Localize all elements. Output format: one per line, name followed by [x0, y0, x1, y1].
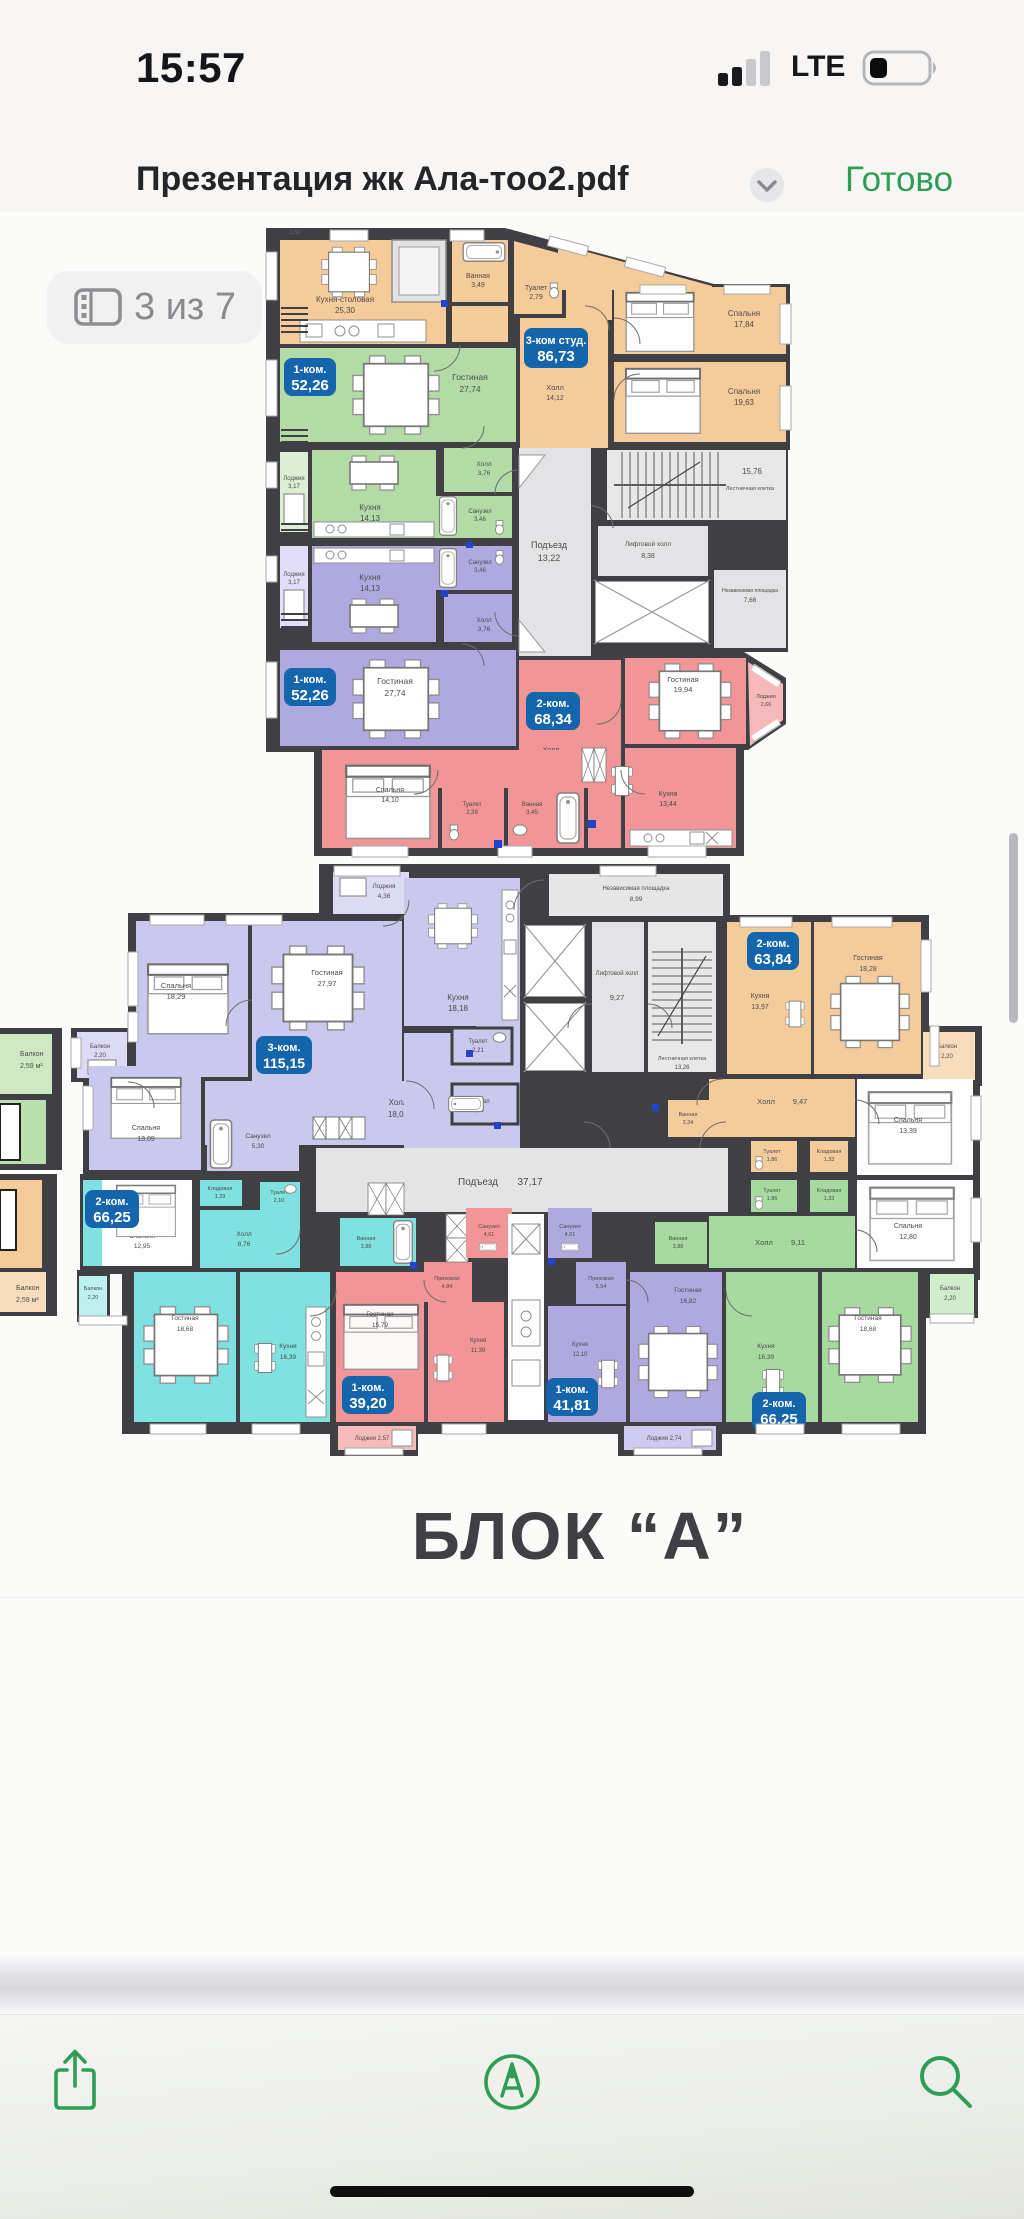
svg-text:13,22: 13,22: [538, 553, 561, 563]
svg-text:68,34: 68,34: [534, 711, 572, 728]
svg-text:12,95: 12,95: [134, 1243, 151, 1250]
svg-text:16,39: 16,39: [280, 1354, 297, 1361]
svg-text:Спальня: Спальня: [728, 309, 760, 318]
svg-text:Ванная: Ванная: [466, 273, 490, 280]
svg-text:Холл: Холл: [546, 383, 564, 392]
svg-text:Прихожая: Прихожая: [588, 1276, 614, 1282]
svg-text:18,29: 18,29: [167, 992, 186, 1001]
svg-text:15,76: 15,76: [742, 467, 763, 476]
svg-text:Лестничная клетка: Лестничная клетка: [726, 486, 775, 492]
svg-text:Кухня: Кухня: [279, 1343, 297, 1350]
svg-text:Балкон: Балкон: [940, 1286, 960, 1292]
svg-text:3,49: 3,49: [471, 282, 485, 289]
svg-text:Санузел: Санузел: [478, 1224, 499, 1230]
svg-text:1,86: 1,86: [767, 1157, 778, 1163]
svg-text:Холл: Холл: [757, 1097, 775, 1106]
svg-text:3,45: 3,45: [526, 810, 538, 816]
svg-text:18,28: 18,28: [859, 966, 877, 973]
svg-text:4,61: 4,61: [565, 1232, 576, 1238]
svg-text:Кухня: Кухня: [359, 573, 380, 582]
svg-text:2-ком.: 2-ком.: [96, 1196, 129, 1208]
svg-text:Гостиная: Гостиная: [853, 955, 883, 962]
svg-text:19,63: 19,63: [734, 398, 755, 407]
svg-text:3,76: 3,76: [478, 470, 491, 477]
svg-text:Балкон: Балкон: [84, 1286, 102, 1292]
svg-text:Ванная: Ванная: [679, 1112, 698, 1118]
svg-text:Лестничная клетка: Лестничная клетка: [658, 1056, 707, 1062]
svg-text:Балкон: Балкон: [20, 1051, 44, 1058]
svg-text:Холл: Холл: [236, 1231, 252, 1238]
svg-text:2,20: 2,20: [88, 1295, 99, 1301]
svg-text:18,68: 18,68: [860, 1326, 877, 1333]
svg-text:13,26: 13,26: [674, 1065, 690, 1071]
svg-text:Кухня-столовая: Кухня-столовая: [316, 295, 374, 304]
svg-text:Гостиная: Гостиная: [377, 676, 413, 686]
svg-text:2,20: 2,20: [94, 1053, 106, 1059]
svg-text:7,66: 7,66: [744, 597, 757, 604]
svg-text:5,30: 5,30: [252, 1143, 265, 1150]
svg-text:Подъезд: Подъезд: [531, 540, 568, 550]
svg-text:Кухня: Кухня: [470, 1338, 486, 1344]
svg-text:9,47: 9,47: [793, 1097, 808, 1106]
svg-text:14,13: 14,13: [360, 584, 381, 593]
svg-text:13,97: 13,97: [751, 1004, 769, 1011]
svg-text:Туалет: Туалет: [763, 1188, 781, 1194]
svg-text:52,26: 52,26: [291, 377, 329, 394]
svg-text:Лоджия: Лоджия: [283, 476, 304, 482]
svg-text:86,73: 86,73: [537, 348, 575, 365]
svg-text:Спальня: Спальня: [376, 787, 404, 794]
svg-text:3,88: 3,88: [361, 1244, 372, 1250]
svg-text:Гостиная: Гостиная: [171, 1315, 199, 1322]
svg-text:Ванная: Ванная: [669, 1236, 688, 1242]
svg-text:3-ком.: 3-ком.: [268, 1042, 301, 1054]
svg-text:Лоджия: Лоджия: [283, 572, 304, 578]
svg-text:2,79: 2,79: [529, 294, 543, 301]
svg-text:Кухня: Кухня: [757, 1343, 775, 1350]
svg-text:12,10: 12,10: [572, 1352, 588, 1358]
svg-text:18,18: 18,18: [448, 1004, 469, 1013]
svg-text:3,46: 3,46: [474, 517, 486, 523]
svg-text:4,36: 4,36: [378, 893, 391, 900]
svg-text:Холл: Холл: [755, 1238, 773, 1247]
svg-text:3,34: 3,34: [683, 1120, 694, 1126]
svg-text:1,33: 1,33: [824, 1196, 835, 1202]
svg-text:27,74: 27,74: [384, 688, 406, 698]
svg-text:2,39: 2,39: [466, 810, 478, 816]
svg-text:16,39: 16,39: [758, 1354, 775, 1361]
svg-text:13,09: 13,09: [137, 1136, 155, 1143]
svg-text:Кухня: Кухня: [359, 503, 380, 512]
svg-text:Ванная: Ванная: [357, 1236, 376, 1242]
svg-text:Балкон: Балкон: [937, 1044, 957, 1050]
svg-text:2-ком.: 2-ком.: [763, 1398, 796, 1410]
svg-text:Независимая площадка: Независимая площадка: [603, 886, 671, 892]
svg-text:13,39: 13,39: [899, 1128, 917, 1135]
svg-text:Спальня: Спальня: [894, 1117, 922, 1124]
svg-text:Лоджия 2,57: Лоджия 2,57: [355, 1436, 390, 1442]
svg-text:Лоджия: Лоджия: [756, 694, 776, 700]
svg-text:Прихожая: Прихожая: [434, 1276, 460, 1282]
svg-text:Кухня: Кухня: [447, 993, 468, 1002]
svg-text:Холл: Холл: [476, 461, 492, 468]
svg-text:8,38: 8,38: [641, 553, 655, 560]
svg-text:Гостиная: Гостиная: [667, 675, 698, 684]
svg-text:115,15: 115,15: [263, 1055, 305, 1071]
svg-text:Независимая площадка: Независимая площадка: [722, 588, 778, 594]
svg-text:3,17: 3,17: [288, 580, 300, 586]
svg-text:13,44: 13,44: [659, 801, 677, 808]
svg-text:1-ком.: 1-ком.: [352, 1382, 385, 1394]
svg-text:Гостиная: Гостиная: [854, 1315, 882, 1322]
svg-text:4,84: 4,84: [442, 1284, 453, 1290]
svg-text:3,46: 3,46: [474, 568, 486, 574]
svg-text:Спальня: Спальня: [132, 1125, 160, 1132]
svg-text:18,68: 18,68: [177, 1326, 194, 1333]
svg-text:8,99: 8,99: [630, 896, 643, 903]
svg-text:Лоджия 2,74: Лоджия 2,74: [647, 1436, 682, 1442]
svg-text:3,88: 3,88: [673, 1244, 684, 1250]
svg-text:1,33: 1,33: [824, 1157, 835, 1163]
svg-text:Лоджия: Лоджия: [372, 883, 396, 890]
svg-text:Кухня: Кухня: [751, 993, 770, 1000]
svg-text:3,17: 3,17: [288, 484, 300, 490]
svg-text:37,17: 37,17: [517, 1177, 542, 1188]
svg-text:Кладовая: Кладовая: [817, 1188, 842, 1194]
svg-text:2-ком.: 2-ком.: [537, 698, 570, 710]
svg-text:27,74: 27,74: [459, 384, 481, 394]
svg-text:2,59 м²: 2,59 м²: [20, 1063, 43, 1070]
svg-text:3,56: 3,56: [290, 230, 301, 236]
svg-text:Санузел: Санузел: [559, 1224, 580, 1230]
svg-text:8,76: 8,76: [238, 1241, 251, 1248]
svg-text:15,79: 15,79: [372, 1322, 389, 1329]
svg-text:3-ком студ.: 3-ком студ.: [526, 335, 587, 347]
svg-text:Санузел: Санузел: [245, 1133, 271, 1140]
svg-text:11,39: 11,39: [471, 1348, 486, 1354]
svg-text:63,84: 63,84: [754, 951, 792, 968]
svg-text:1,86: 1,86: [767, 1196, 778, 1202]
svg-text:Гостиная: Гостиная: [311, 968, 342, 977]
svg-text:66,25: 66,25: [93, 1209, 131, 1226]
svg-text:9,11: 9,11: [791, 1238, 805, 1247]
svg-text:2,20: 2,20: [941, 1054, 953, 1060]
svg-text:41,81: 41,81: [553, 1397, 591, 1414]
svg-text:17,84: 17,84: [734, 320, 755, 329]
svg-text:16,82: 16,82: [680, 1298, 697, 1305]
svg-text:Туалет: Туалет: [525, 285, 548, 292]
svg-text:Гостиная: Гостиная: [366, 1311, 394, 1318]
svg-text:Гостиная: Гостиная: [674, 1287, 702, 1294]
svg-text:Балкон: Балкон: [90, 1044, 110, 1050]
svg-text:25,30: 25,30: [335, 306, 356, 315]
svg-text:19,94: 19,94: [674, 685, 693, 694]
svg-text:2,20: 2,20: [944, 1296, 956, 1302]
svg-text:Кладовая: Кладовая: [208, 1186, 233, 1192]
svg-text:Ванная: Ванная: [522, 802, 543, 808]
svg-text:Спальня: Спальня: [894, 1223, 922, 1230]
svg-text:Подъезд: Подъезд: [458, 1177, 498, 1188]
svg-text:Кухня: Кухня: [659, 791, 678, 798]
svg-text:Лифтовой холл: Лифтовой холл: [596, 970, 639, 977]
svg-text:3,76: 3,76: [478, 626, 491, 633]
svg-text:Спальня: Спальня: [728, 387, 760, 396]
svg-text:4,61: 4,61: [484, 1232, 495, 1238]
svg-text:Балкон: Балкон: [16, 1285, 40, 1292]
svg-text:1-ком.: 1-ком.: [556, 1384, 589, 1396]
svg-text:2,10: 2,10: [274, 1198, 285, 1204]
svg-text:2,59 м²: 2,59 м²: [16, 1297, 39, 1304]
svg-text:Гостиная: Гостиная: [452, 372, 488, 382]
svg-text:39,20: 39,20: [349, 1395, 387, 1412]
svg-text:1,29: 1,29: [215, 1194, 226, 1200]
svg-text:2,66: 2,66: [761, 702, 772, 708]
svg-text:Санузел: Санузел: [468, 509, 492, 515]
svg-text:Кухня: Кухня: [572, 1342, 588, 1348]
svg-text:5,54: 5,54: [596, 1284, 607, 1290]
svg-text:Холл: Холл: [476, 617, 492, 624]
svg-text:2-ком.: 2-ком.: [757, 938, 790, 950]
svg-text:9,27: 9,27: [610, 993, 625, 1002]
svg-text:52,26: 52,26: [291, 687, 329, 704]
svg-text:1-ком.: 1-ком.: [294, 674, 327, 686]
svg-text:Туалет: Туалет: [463, 802, 482, 808]
svg-text:1-ком.: 1-ком.: [294, 364, 327, 376]
svg-text:Лифтовой холл: Лифтовой холл: [625, 540, 671, 548]
svg-text:Кладовая: Кладовая: [817, 1149, 842, 1155]
svg-text:12,80: 12,80: [899, 1234, 917, 1241]
svg-text:14,12: 14,12: [546, 395, 564, 402]
svg-text:Спальня: Спальня: [161, 981, 191, 990]
svg-text:14,10: 14,10: [381, 797, 399, 804]
svg-text:Туалет: Туалет: [763, 1149, 781, 1155]
svg-text:27,97: 27,97: [318, 979, 337, 988]
svg-text:Санузел: Санузел: [468, 560, 492, 566]
